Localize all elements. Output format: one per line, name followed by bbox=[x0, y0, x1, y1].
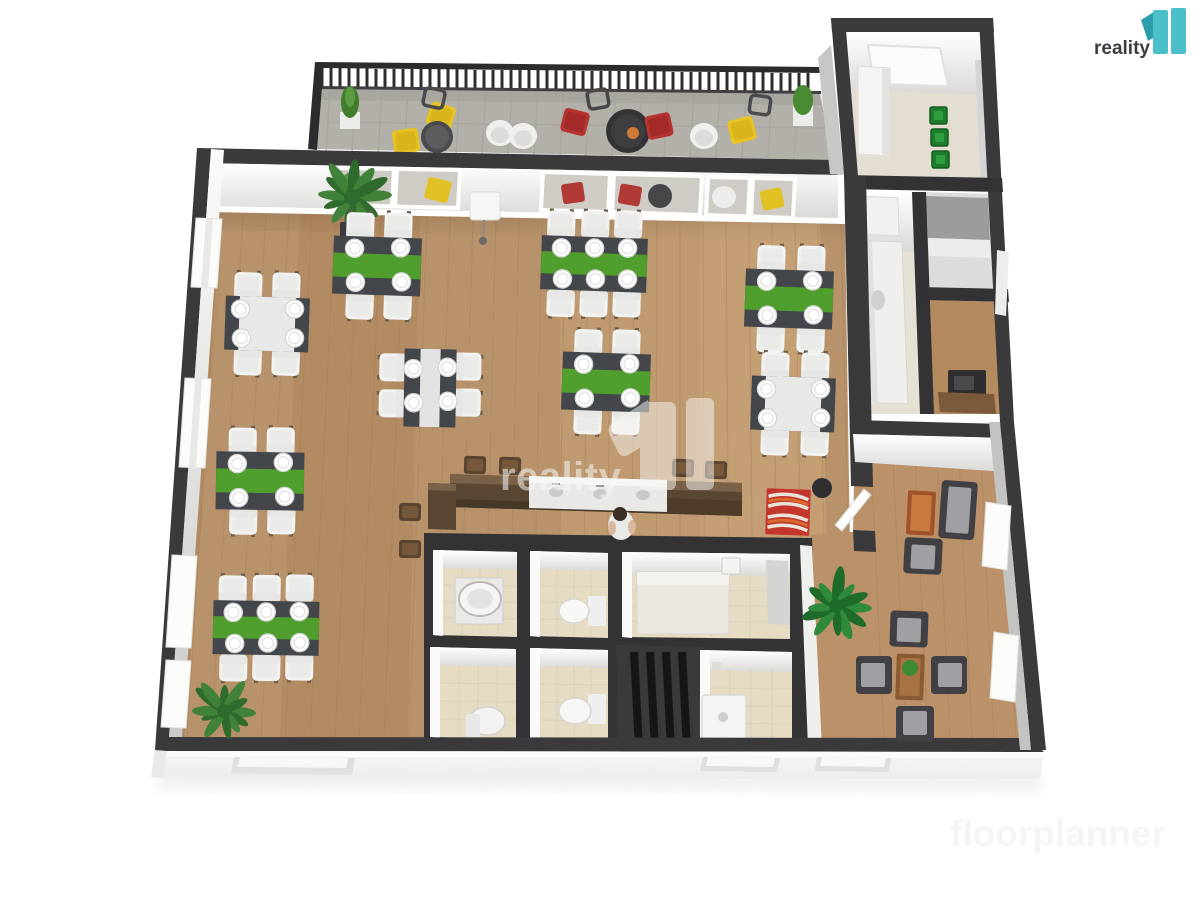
svg-text:reality: reality bbox=[500, 455, 622, 499]
svg-text:reality: reality bbox=[1094, 38, 1150, 59]
svg-text:floorplanner: floorplanner bbox=[950, 813, 1166, 854]
